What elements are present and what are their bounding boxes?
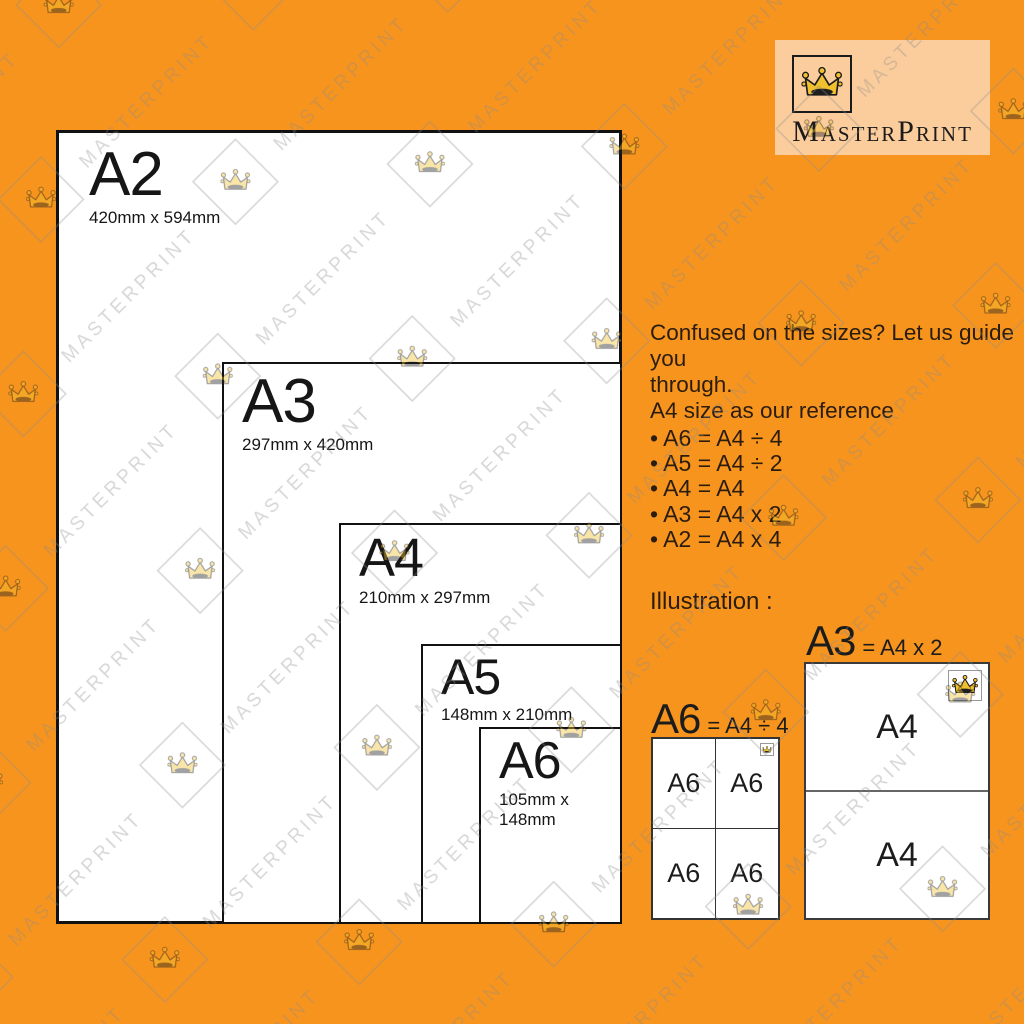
paper-size-dimensions: 297mm x 420mm bbox=[242, 435, 620, 455]
figure-a6-cell: A6 bbox=[716, 829, 779, 919]
size-rule-item: • A2 = A4 x 4 bbox=[650, 527, 783, 552]
paper-size-label: A4 bbox=[359, 531, 620, 586]
paper-size-label: A5 bbox=[441, 652, 620, 703]
figure-a6-grid: A6 A6 A6 A6 bbox=[651, 737, 780, 920]
paper-size-dimensions: 105mm x 148mm bbox=[499, 790, 620, 830]
figure-a6-title: A6 = A4 ÷ 4 bbox=[651, 698, 789, 740]
figure-a6-cell: A6 bbox=[653, 739, 716, 829]
illustration-heading: Illustration : bbox=[650, 588, 773, 616]
paper-size-label: A6 bbox=[499, 735, 620, 788]
brand-logo-panel: MasterPrint bbox=[775, 40, 990, 155]
paper-size-label: A2 bbox=[89, 143, 619, 206]
figure-a3-label: A3 bbox=[806, 620, 855, 662]
paper-size-dimensions: 420mm x 594mm bbox=[89, 208, 619, 228]
paper-size-dimensions: 210mm x 297mm bbox=[359, 588, 620, 608]
guide-intro-line: through. bbox=[650, 372, 1022, 398]
size-rule-item: • A5 = A4 ÷ 2 bbox=[650, 451, 783, 476]
guide-intro: Confused on the sizes? Let us guide you … bbox=[650, 320, 1022, 424]
size-rules-list: • A6 = A4 ÷ 4 • A5 = A4 ÷ 2 • A4 = A4 • … bbox=[650, 426, 783, 552]
figure-a6-cell: A6 bbox=[653, 829, 716, 919]
paper-size-dimensions: 148mm x 210mm bbox=[441, 705, 620, 725]
size-rule-item: • A3 = A4 x 2 bbox=[650, 502, 783, 527]
figure-a3-equation: = A4 x 2 bbox=[862, 635, 942, 661]
figure-a3-title: A3 = A4 x 2 bbox=[806, 620, 943, 662]
guide-intro-line: A4 size as our reference bbox=[650, 398, 1022, 424]
crown-icon bbox=[792, 55, 852, 113]
poster: A2 420mm x 594mm A3 297mm x 420mm A4 210… bbox=[0, 0, 1024, 1024]
figure-a6-equation: = A4 ÷ 4 bbox=[707, 713, 788, 739]
guide-intro-line: Confused on the sizes? Let us guide you bbox=[650, 320, 1022, 372]
paper-size-label: A3 bbox=[242, 370, 620, 433]
crown-icon bbox=[760, 743, 774, 756]
size-rule-item: • A4 = A4 bbox=[650, 476, 783, 501]
size-rule-item: • A6 = A4 ÷ 4 bbox=[650, 426, 783, 451]
figure-a3-half: A4 bbox=[806, 792, 988, 918]
crown-icon bbox=[948, 670, 982, 701]
figure-a3-sheet: A4 A4 bbox=[804, 662, 990, 920]
figure-a6-label: A6 bbox=[651, 698, 700, 740]
brand-name: MasterPrint bbox=[775, 115, 990, 149]
paper-box-a6: A6 105mm x 148mm bbox=[479, 727, 622, 924]
